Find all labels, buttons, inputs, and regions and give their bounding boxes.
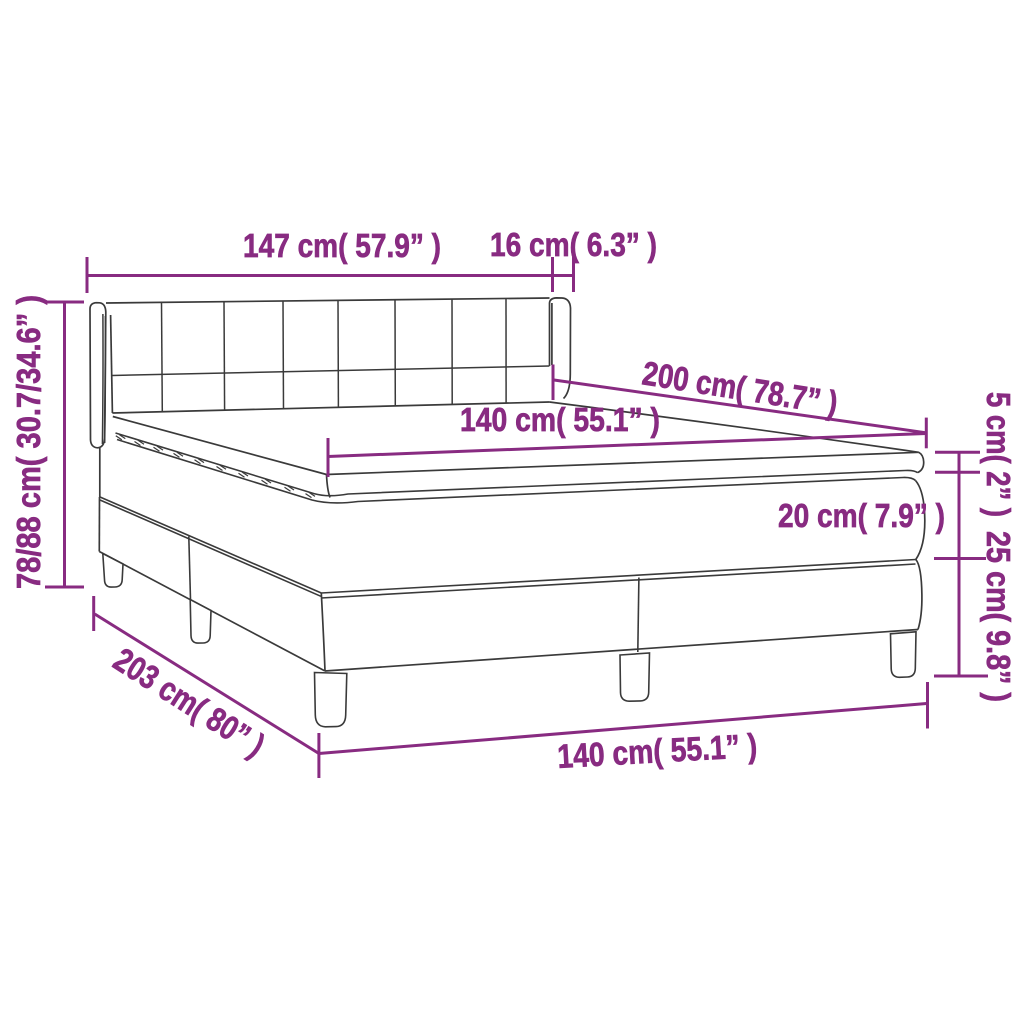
svg-text:140 cm( 55.1” ): 140 cm( 55.1” ) (460, 402, 660, 439)
svg-text:5 cm( 2” ): 5 cm( 2” ) (979, 392, 1016, 517)
svg-text:200 cm( 78.7” ): 200 cm( 78.7” ) (640, 355, 840, 422)
svg-text:140 cm( 55.1” ): 140 cm( 55.1” ) (556, 728, 758, 776)
svg-text:147 cm( 57.9” ): 147 cm( 57.9” ) (243, 228, 441, 265)
svg-text:78/88 cm( 30.7/34.6” ): 78/88 cm( 30.7/34.6” ) (11, 295, 48, 589)
svg-text:16 cm( 6.3” ): 16 cm( 6.3” ) (490, 227, 657, 264)
svg-text:20 cm( 7.9” ): 20 cm( 7.9” ) (778, 498, 945, 535)
svg-text:203 cm( 80” ): 203 cm( 80” ) (107, 642, 271, 765)
svg-text:25 cm( 9.8” ): 25 cm( 9.8” ) (979, 531, 1016, 702)
